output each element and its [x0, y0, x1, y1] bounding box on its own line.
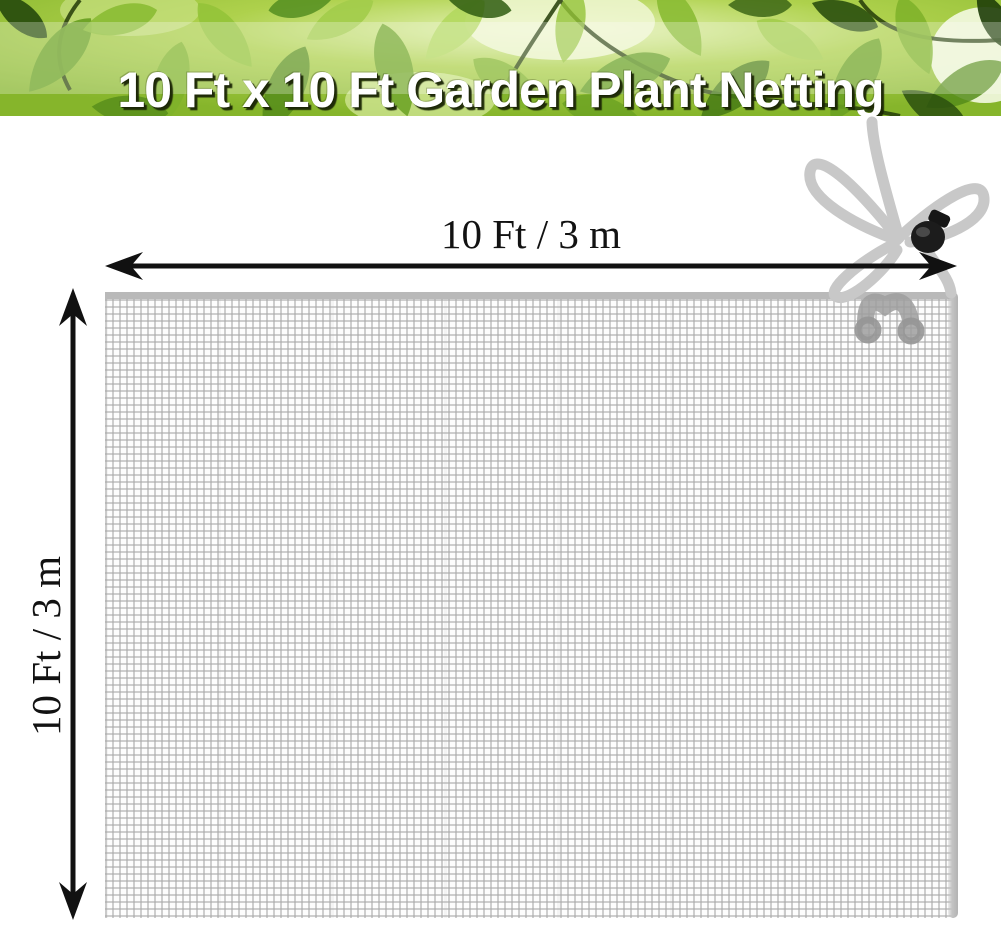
netting-top-edge	[105, 292, 956, 299]
toggle-ball	[911, 221, 945, 253]
arrowhead-left	[105, 252, 143, 280]
arrowhead-top	[59, 288, 87, 326]
arrowhead-right	[919, 252, 957, 280]
cord-lock-toggle	[911, 208, 952, 253]
netting-mesh	[105, 292, 956, 918]
header-banner: 10 Ft x 10 Ft Garden Plant Netting	[0, 0, 1001, 116]
arrowhead-bottom	[59, 882, 87, 920]
netting-edge-cord	[948, 292, 958, 918]
product-image: 10 Ft x 10 Ft Garden Plant Netting	[0, 0, 1001, 925]
toggle-highlight	[916, 227, 930, 237]
height-dimension-label: 10 Ft / 3 m	[22, 556, 70, 736]
tie-cord	[810, 122, 984, 298]
page-title: 10 Ft x 10 Ft Garden Plant Netting	[117, 61, 883, 117]
toggle-cap	[927, 208, 952, 229]
width-dimension-label: 10 Ft / 3 m	[441, 210, 621, 258]
